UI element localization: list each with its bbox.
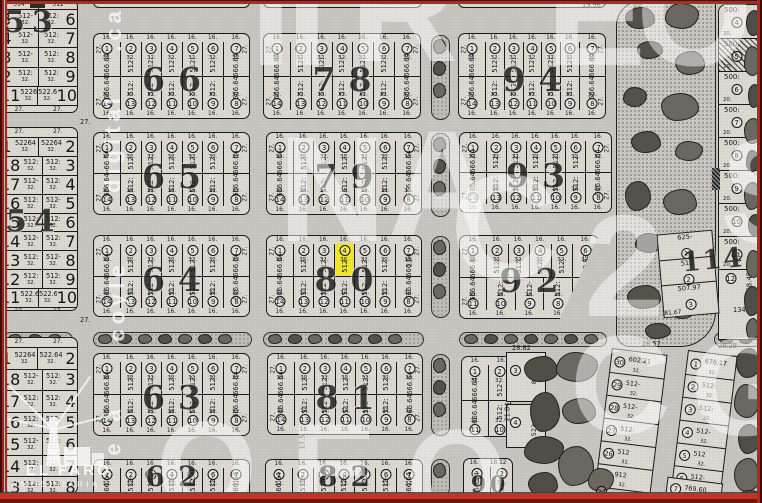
lot-cell: 512:32. bbox=[42, 434, 64, 455]
lot-number: 2 bbox=[687, 381, 699, 393]
frontage-tick: 16. bbox=[223, 308, 249, 316]
lot-number: 9 bbox=[208, 98, 219, 109]
lot-depth: 32. bbox=[702, 415, 711, 422]
lot-frontage: 28.82 bbox=[512, 344, 531, 352]
frontage-tick: 16. bbox=[551, 236, 573, 244]
lot-dimension: 512: bbox=[20, 460, 41, 467]
lot-number: 10 bbox=[187, 296, 198, 307]
lot-depth: 32. bbox=[20, 423, 41, 429]
lot-depth: 32. bbox=[705, 393, 714, 400]
block-114: 625-15112507.97381.67114 bbox=[656, 230, 719, 319]
lot-dimension: 512: bbox=[147, 375, 155, 390]
lot-number: 9 bbox=[380, 296, 391, 307]
block-lot-row-top: 132.666.64232.512-332.512:432.512-532.51… bbox=[264, 42, 420, 77]
frontage-tick: 16. bbox=[182, 133, 203, 141]
frontage-tick: 16. bbox=[223, 133, 249, 141]
frontage-tick: 16. bbox=[171, 0, 197, 7]
tree-clump-icon bbox=[433, 358, 446, 373]
lot-number: 27 bbox=[605, 424, 617, 436]
lot-depth: 32. bbox=[43, 467, 64, 473]
lot-depth: 32. bbox=[38, 359, 64, 365]
lot-side-dimension: 27. bbox=[97, 413, 103, 422]
block-80: 16.16.16.16.16.16.16.132.666.64232.512-3… bbox=[266, 235, 422, 317]
frontage-tick: 16. bbox=[94, 354, 120, 362]
lot: 512:32.9 bbox=[565, 173, 585, 204]
lot-cell: 512:32. bbox=[20, 391, 41, 412]
tree-clump-icon bbox=[348, 334, 362, 344]
lot-dimension: 512: bbox=[39, 70, 64, 77]
lot-dimension: 512: bbox=[361, 476, 369, 491]
lot-dimension: 512: bbox=[147, 257, 155, 272]
lot: 512:32.13 bbox=[120, 395, 141, 427]
tree-clump-icon bbox=[433, 284, 446, 299]
lot: 632.512- bbox=[202, 244, 223, 276]
lot-number: 5 bbox=[679, 449, 691, 461]
lot: 512:32.13 bbox=[293, 174, 313, 206]
lot: 332.512: bbox=[141, 362, 162, 394]
lot-dimension: 512: bbox=[147, 154, 155, 169]
lot-number: 2 bbox=[125, 363, 136, 374]
lot-dimension: 512- bbox=[43, 254, 64, 261]
lot-number: 14 bbox=[102, 98, 113, 109]
lot-dimension: 52264 bbox=[13, 140, 38, 147]
lot: 512-32.10 bbox=[354, 174, 374, 206]
frontage-tick: 16. bbox=[223, 110, 249, 118]
block-63: 16.16.16.16.16.16.16.132.666.64232.512-3… bbox=[93, 353, 250, 436]
lot: 232.512- bbox=[292, 468, 313, 495]
lot-depth: 32. bbox=[43, 185, 64, 191]
lot-number: 3 bbox=[511, 142, 522, 153]
lot-dimension: 512- bbox=[297, 57, 305, 72]
lot: 512-32.10 bbox=[354, 277, 374, 309]
frontage-tick-row: 16.16.16.16.16.16.16. bbox=[94, 110, 249, 118]
lot-number: 1 bbox=[1, 349, 11, 368]
lot-side-dimension: 27. bbox=[599, 44, 605, 53]
lot-number: 8 bbox=[403, 296, 414, 307]
lot-number: 9 bbox=[208, 296, 219, 307]
tree-clump-icon bbox=[562, 398, 596, 424]
tree-clump-icon bbox=[740, 490, 760, 500]
tree-clump-icon bbox=[433, 262, 446, 277]
frontage-tick: 16. bbox=[486, 236, 508, 244]
lot-number: 15 bbox=[0, 434, 20, 455]
lot-number: 4 bbox=[681, 426, 693, 438]
lot-number: 2 bbox=[489, 43, 500, 54]
block-81: 16.16.16.16.16.16.16.132.666.64232.512-3… bbox=[267, 353, 423, 435]
frontage-tick: 16. bbox=[267, 133, 293, 141]
lot-cell: 512:32. bbox=[20, 456, 41, 477]
frontage-tick: 16. bbox=[396, 460, 422, 468]
lot-number: 4 bbox=[337, 43, 348, 54]
lot: 132.666.64 bbox=[464, 467, 490, 495]
lot-number: 9 bbox=[65, 67, 75, 86]
lot: 232.512- bbox=[120, 362, 141, 394]
lot-depth: 32. bbox=[618, 482, 627, 489]
lot-number: 9 bbox=[570, 192, 581, 203]
lot-depth: 32. bbox=[20, 402, 41, 408]
frontage-tick: 16. bbox=[182, 110, 203, 118]
frontage-tick: 16. bbox=[182, 427, 203, 435]
tree-clump-icon bbox=[118, 334, 132, 344]
lot-depth: 32. bbox=[700, 438, 709, 445]
lot: 512-32.12 bbox=[141, 174, 162, 206]
lot-number: 12 bbox=[320, 414, 331, 425]
frontage-tick: 16. bbox=[94, 206, 120, 214]
lot-dimension: 512: bbox=[320, 154, 328, 169]
lot-side-dimension: 27. bbox=[415, 192, 421, 201]
lot-depth: 32. bbox=[697, 461, 706, 468]
lot-number: 29 bbox=[611, 379, 623, 391]
lot-number: 2 bbox=[494, 366, 505, 377]
block-bottom-edge-strip: 16.16.16.16.16.16. bbox=[93, 0, 250, 8]
lot-row: 17512-32.512:32.4 bbox=[0, 175, 77, 194]
frontage-tick: 16. bbox=[541, 110, 560, 118]
lot-dimension: 666.64 bbox=[588, 53, 596, 76]
frontage-tick: 16. bbox=[459, 110, 485, 118]
lot-dimension: 512: bbox=[558, 258, 566, 273]
tree-clump-icon bbox=[138, 334, 152, 344]
lot-dimension: 512- bbox=[340, 476, 348, 491]
lot-number: 3 bbox=[146, 245, 157, 256]
frontage-tick: 16. bbox=[161, 354, 182, 362]
lot-dimension: 512: bbox=[320, 257, 328, 272]
block-number: 114 bbox=[681, 242, 746, 278]
tree-clump-icon bbox=[627, 285, 661, 309]
lot-number: 11 bbox=[527, 98, 538, 109]
lot-depth: 32. bbox=[621, 459, 630, 466]
lot-number: 11 bbox=[166, 98, 177, 109]
lot-dimension: 769.60 bbox=[684, 484, 707, 495]
frontage-tick: 16. bbox=[268, 354, 294, 362]
block-66: 16.16.16.16.16.16.16.132.666.64232.512-3… bbox=[93, 33, 250, 119]
lot: 632.512- bbox=[373, 42, 394, 76]
tree-clump-icon bbox=[433, 83, 446, 98]
frontage-tick: 16. bbox=[223, 427, 249, 435]
lot-side-dimension: 27. bbox=[415, 143, 421, 152]
lot-number: 8 bbox=[587, 98, 598, 109]
lot-dimension: 666.64 bbox=[232, 472, 240, 495]
lot-side-dimension: 27. bbox=[271, 412, 277, 421]
lot-number: 5 bbox=[65, 194, 75, 213]
lot-side-dimension: 27. bbox=[463, 190, 469, 199]
frontage-tick-row: 16.16.16.16.16. bbox=[460, 310, 598, 318]
lot-number: 1 bbox=[690, 357, 702, 369]
lot-side-dimension: 27. bbox=[97, 96, 103, 105]
tree-lane-strip bbox=[93, 332, 252, 347]
lot-number: 8 bbox=[231, 415, 242, 426]
frontage-tick: 16. bbox=[223, 236, 249, 244]
frontage-tick: 16. bbox=[313, 460, 334, 468]
lot-number: 8 bbox=[231, 194, 242, 205]
lot-number: 6 bbox=[65, 213, 75, 232]
frontage-tick: 16. bbox=[506, 133, 526, 141]
lot-frontage: 28.29 bbox=[718, 342, 737, 350]
frontage-tick: 16. bbox=[396, 354, 422, 362]
block-lot-row-top: 132.666.64232.512-332.512:432.512-532.51… bbox=[460, 244, 598, 278]
lot: 512:32.11 bbox=[332, 77, 353, 111]
lot: 512-32.12 bbox=[506, 173, 526, 204]
frontage-tick: 16. bbox=[161, 34, 182, 42]
frontage-tick: 16. bbox=[146, 0, 172, 7]
tree-clump-icon bbox=[528, 472, 558, 496]
side-dimension: 27. bbox=[15, 338, 24, 347]
lot-depth: 32. bbox=[629, 391, 638, 398]
tree-clump-icon bbox=[623, 87, 647, 107]
side-dimension: 27. bbox=[53, 338, 62, 347]
frontage-tick: 16. bbox=[541, 34, 560, 42]
lot-number: 8 bbox=[731, 150, 742, 161]
lot-number: 12 bbox=[319, 296, 330, 307]
lot: 332.512: bbox=[506, 141, 526, 172]
block-lot-row-top: 132.666.64232.512-332.512:432.512-532.51… bbox=[94, 141, 249, 174]
lot-depth: 32. bbox=[39, 298, 57, 304]
lot-side-dimension: 27. bbox=[415, 246, 421, 255]
tree-clump-icon bbox=[198, 334, 212, 344]
frontage-tick: 16. bbox=[264, 110, 290, 118]
lot-number: 3 bbox=[146, 363, 157, 374]
highlighted-lot[interactable]: 432.512- bbox=[334, 244, 354, 276]
lot-cell: 522.6432. bbox=[37, 87, 56, 105]
lot-dimension: 512- bbox=[623, 402, 638, 412]
frontage-tick: 16. bbox=[504, 34, 523, 42]
lot: 232.512- bbox=[294, 362, 314, 394]
lot-number: 10 bbox=[359, 194, 370, 205]
block-79: 16.16.16.16.16.16.16.132.666.64232.512-3… bbox=[266, 132, 422, 215]
frontage-tick-row: 16.16.16.16.16.16.16. bbox=[94, 206, 249, 214]
frontage-tick: 16. bbox=[313, 206, 333, 214]
block-right-column: 500:420.500:520.500:620.500:720.500:820.… bbox=[718, 4, 758, 340]
frontage-tick: 16. bbox=[460, 310, 486, 318]
lot-number: 4 bbox=[731, 17, 742, 28]
lot-dimension: 512: bbox=[43, 178, 64, 185]
lot-row: 12512:32.512:32.9 bbox=[0, 269, 77, 288]
lot-dimension: 666.64 bbox=[232, 253, 240, 276]
lot-depth: 32. bbox=[20, 242, 41, 248]
tree-clump-icon bbox=[738, 424, 760, 454]
tree-clump-icon bbox=[625, 181, 651, 211]
lot-dimension: 512- bbox=[209, 57, 217, 72]
lot-number: 10 bbox=[495, 298, 506, 309]
lot-dimension: 666.64 bbox=[403, 53, 411, 76]
lot-dimension: 602.21 bbox=[628, 355, 651, 366]
lot: 632.512- bbox=[565, 141, 585, 172]
tree-clump-icon bbox=[368, 334, 382, 344]
frontage-tick: 16. bbox=[485, 34, 504, 42]
frontage-tick: 16. bbox=[120, 236, 141, 244]
lot-dimension: 512- bbox=[536, 258, 544, 273]
lot-number: 12 bbox=[316, 98, 327, 109]
lot-dimension: 522.64 bbox=[38, 352, 64, 359]
lot-depth: 32. bbox=[13, 77, 38, 83]
frontage-tick: 16. bbox=[267, 206, 293, 214]
lot-cell: 5226432. bbox=[13, 348, 37, 369]
lot-dimension: 666.64 bbox=[471, 377, 479, 400]
lot: 512:32.9 bbox=[202, 77, 223, 111]
tree-clump-icon bbox=[328, 334, 342, 344]
lot: 512:32.11 bbox=[334, 174, 354, 206]
lot-number: 11 bbox=[340, 414, 351, 425]
lot-number: 8 bbox=[231, 296, 242, 307]
tree-clump-icon bbox=[631, 131, 661, 153]
lot-number: 4 bbox=[64, 176, 77, 194]
lot: 532.512: bbox=[355, 362, 375, 394]
lot: 532.512: bbox=[545, 141, 565, 172]
lot-dimension: 512: bbox=[43, 273, 64, 280]
lot-side-dimension: 27. bbox=[414, 44, 420, 53]
lot-number: 6 bbox=[64, 10, 77, 28]
cadastral-plat-map[interactable]: EL FARO INMOBILIARIA 16.16.16.16.16.16.1… bbox=[0, 0, 762, 503]
frontage-tick: 16. bbox=[197, 0, 223, 7]
lot-number: 4 bbox=[166, 43, 177, 54]
block-partial: 27.27.15226432.522.6432.218512-32.512:32… bbox=[0, 337, 78, 494]
lot-dimension: 512: bbox=[515, 258, 523, 273]
tree-clump-icon bbox=[544, 334, 558, 344]
block-lot-row-bottom: 666.6432.14512:32.13512-32.12512:32.1151… bbox=[94, 395, 249, 427]
lot: 232.512- bbox=[120, 42, 141, 76]
map-annotation: 27. bbox=[80, 316, 91, 324]
block-lot-row-top: 132.666.64232.512-332.512:432.512-532.51… bbox=[460, 141, 611, 173]
frontage-tick-row: 16.16.16.16.16.16.16. bbox=[268, 354, 422, 362]
lot-number: 8 bbox=[553, 298, 564, 309]
lot-number: 5 bbox=[359, 245, 370, 256]
block-93: 16.16.16.16.16.16.16.132.666.64232.512-3… bbox=[459, 132, 612, 213]
lot-side-dimension: 27. bbox=[592, 296, 598, 305]
lot: 432.512- bbox=[161, 362, 182, 394]
frontage-tick-row: 16.16.16.16.16.16.16. bbox=[268, 426, 422, 434]
lot-dimension: 522.64 bbox=[20, 291, 38, 298]
lot-depth: 32. bbox=[20, 298, 38, 304]
lot: 532.512: bbox=[352, 42, 373, 76]
block-lot-row-bottom: 666.6432.14512:32.13512-32.12512:32.1151… bbox=[94, 277, 249, 309]
lot: 332.512: bbox=[141, 42, 162, 76]
frontage-tick: 16. bbox=[394, 34, 420, 42]
lot-dimension: 620.83 bbox=[582, 254, 590, 277]
lot: 512-32.12 bbox=[141, 277, 162, 309]
lot: 512:32.11 bbox=[526, 173, 546, 204]
lot-dimension: 512- bbox=[168, 57, 176, 72]
lot: 332.512: bbox=[508, 244, 530, 277]
lot-side-dimension: 27. bbox=[462, 96, 468, 105]
lot-number: 18 bbox=[0, 156, 20, 175]
lot-number: 14 bbox=[0, 456, 20, 477]
lot-cell: 512:32. bbox=[20, 477, 41, 494]
lot-depth: 32. bbox=[39, 147, 64, 153]
frontage-tick-row: 16.16.16.16.16.16.16. bbox=[267, 236, 421, 244]
lot-number: 13 bbox=[0, 478, 20, 494]
lot-number: 11 bbox=[166, 194, 177, 205]
lot-number: 8 bbox=[402, 98, 413, 109]
lot-number: 11 bbox=[166, 415, 177, 426]
lot: 132.666.64 bbox=[462, 365, 488, 400]
lot-dimension: 512- bbox=[381, 154, 389, 169]
lot-dimension: 512: bbox=[362, 375, 370, 390]
lot-number: 13 bbox=[0, 251, 20, 270]
lot-number: 4 bbox=[535, 245, 546, 256]
frontage-tick: 16. bbox=[161, 206, 182, 214]
lot-number: 3 bbox=[508, 43, 519, 54]
tree-clump-icon bbox=[524, 334, 538, 344]
lot-number: 2 bbox=[65, 137, 75, 156]
lot: 432.512- bbox=[529, 244, 551, 277]
lot-depth: 32. bbox=[13, 58, 38, 64]
frontage-tick: 16. bbox=[202, 236, 223, 244]
lot-dimension: 666.64 bbox=[473, 472, 481, 495]
lot-row: 115226432.522.6432.10 bbox=[0, 86, 77, 105]
lot: 512-32.10 bbox=[545, 173, 565, 204]
lot: 332.512: bbox=[314, 362, 334, 394]
lot: 632.512- bbox=[202, 42, 223, 76]
block-lot-row-top: 132.666.64232.512-332.512:432.512-532.51… bbox=[94, 244, 249, 277]
lot-number: 8 bbox=[65, 48, 75, 67]
lot: 532.512: bbox=[182, 42, 203, 76]
lot-cell: 512:32. bbox=[38, 48, 64, 66]
frontage-tick: (69 bbox=[264, 0, 290, 7]
frontage-tick: 16. bbox=[394, 110, 420, 118]
frontage-tick: 16. bbox=[375, 206, 395, 214]
lot-number: 3 bbox=[684, 404, 696, 416]
lot: 432.512- bbox=[523, 42, 542, 76]
frontage-tick: 16. bbox=[334, 206, 354, 214]
lot-number: 26 bbox=[603, 447, 615, 459]
lot-side-dimension: 27. bbox=[463, 143, 469, 152]
frontage-tick: 16. bbox=[335, 354, 355, 362]
lot: 232.512- bbox=[293, 244, 313, 276]
lot: 512:32.9 bbox=[202, 395, 223, 427]
frontage-tick: 16. bbox=[560, 34, 579, 42]
frontage-tick: 16. bbox=[268, 426, 294, 434]
lot-number: 2 bbox=[298, 245, 309, 256]
frontage-tick: 16. bbox=[462, 357, 488, 365]
lot-number: 2 bbox=[299, 363, 310, 374]
map-annotation: 1345 bbox=[733, 306, 750, 314]
tree-clump-icon bbox=[663, 189, 697, 215]
lot-dimension: 512: bbox=[43, 159, 64, 166]
lot-number: 12 bbox=[0, 270, 20, 289]
lot-frontage: 20. bbox=[723, 229, 732, 235]
lot-depth: 32. bbox=[626, 413, 635, 420]
lot-dimension: 512 bbox=[693, 449, 706, 458]
frontage-tick: 16. bbox=[120, 427, 141, 435]
lot-cell: 512-32. bbox=[42, 413, 64, 434]
lot-number: 11 bbox=[468, 298, 479, 309]
frontage-tick-row: 16.16.16.16.16.16.16. bbox=[264, 34, 420, 42]
lot-dimension: 512- bbox=[496, 381, 504, 396]
lot: 512-32.9 bbox=[515, 278, 544, 311]
lot-number: 13 bbox=[125, 98, 136, 109]
lot-number: 18 bbox=[0, 370, 20, 389]
frontage-tick-row: 16.16.16.16.16.16.16. bbox=[266, 460, 422, 468]
lot: 332.512: bbox=[504, 42, 523, 76]
tree-clump-icon bbox=[665, 3, 699, 29]
lot-frontage: 20. bbox=[723, 97, 732, 103]
lot: 512:32.9 bbox=[375, 174, 395, 206]
lot-dimension: 512: bbox=[20, 197, 41, 204]
lot-dimension: 666.64 bbox=[594, 149, 602, 172]
block-lot-row-top: 132.666.64232.512: bbox=[464, 467, 512, 495]
frontage-tick: 16. bbox=[294, 426, 314, 434]
lot-number: 9 bbox=[731, 183, 742, 194]
lot-number: 8 bbox=[231, 98, 242, 109]
lot-number: 10 bbox=[187, 194, 198, 205]
block-90: 16.18.12132.666.64232.512:90 bbox=[463, 458, 513, 496]
lot-number: 5 bbox=[187, 245, 198, 256]
frontage-tick: 16. bbox=[94, 110, 120, 118]
lot-dimension: 512: bbox=[20, 416, 41, 423]
lot-row: 14512:32.512:32.7 bbox=[0, 455, 77, 477]
lot: 532.512: bbox=[182, 362, 203, 394]
block-82: 16.16.16.16.16.16.16.132.666.64232.512-3… bbox=[265, 459, 423, 496]
lot-number: 3 bbox=[685, 298, 697, 310]
